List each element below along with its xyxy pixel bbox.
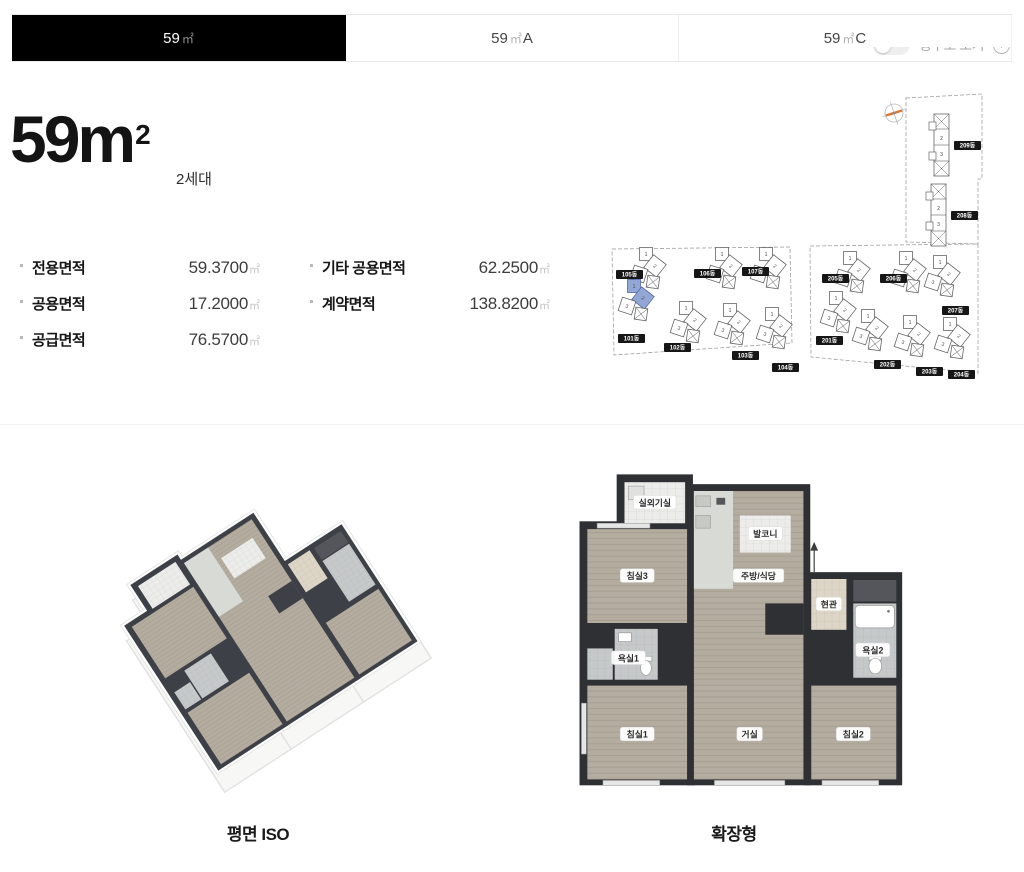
- svg-text:101동: 101동: [624, 335, 640, 343]
- compass-icon: [879, 98, 909, 128]
- building-101동: 123101동: [618, 280, 654, 344]
- svg-text:106동: 106동: [700, 270, 716, 278]
- room-label-outdoor_unit: 실외기실: [634, 495, 676, 509]
- toggle-knob: [875, 47, 891, 53]
- svg-text:1: 1: [867, 314, 870, 320]
- svg-text:1: 1: [645, 252, 648, 258]
- svg-text:욕실1: 욕실1: [618, 652, 639, 663]
- svg-text:1: 1: [765, 252, 768, 258]
- title-superscript: 2: [135, 119, 150, 150]
- building-label: 203동: [916, 367, 943, 376]
- svg-text:1: 1: [949, 322, 952, 328]
- svg-text:1: 1: [685, 306, 688, 312]
- tab-variant: C: [855, 30, 866, 47]
- bullet-icon: [310, 300, 313, 303]
- building-label: 103동: [732, 351, 759, 360]
- svg-text:1: 1: [939, 260, 942, 266]
- svg-text:발코니: 발코니: [753, 528, 777, 539]
- svg-text:203동: 203동: [922, 368, 938, 376]
- svg-text:1: 1: [849, 256, 852, 262]
- svg-text:103동: 103동: [738, 352, 754, 360]
- svg-text:주방/식당: 주방/식당: [741, 570, 776, 581]
- building-label: 102동: [664, 343, 691, 352]
- tab-unit: ㎡: [510, 30, 522, 47]
- building-label: 201동: [816, 336, 843, 345]
- svg-text:102동: 102동: [670, 344, 686, 352]
- info-icon[interactable]: i: [993, 47, 1010, 54]
- svg-text:204동: 204동: [954, 371, 970, 379]
- tab-unit: ㎡: [842, 30, 854, 47]
- building-label: 106동: [694, 269, 721, 278]
- room-label-entry: 현관: [816, 597, 842, 611]
- building-207동: 123207동: [924, 256, 969, 316]
- tab-label: 59: [491, 30, 508, 47]
- svg-text:205동: 205동: [828, 275, 844, 283]
- caption-plan-iso: 평면 ISO: [70, 820, 446, 845]
- svg-text:209동: 209동: [960, 142, 976, 150]
- building-label: 206동: [880, 274, 907, 283]
- room-label-bath2: 욕실2: [856, 643, 890, 657]
- room-label-kitchen: 주방/식당: [733, 569, 784, 583]
- tab-59a[interactable]: 59㎡A: [346, 15, 679, 61]
- area-table-left: 전용면적 59.3700 ㎡ 공용면적 17.2000 ㎡ 공급면적 76.57…: [20, 257, 260, 365]
- svg-text:1: 1: [633, 284, 636, 290]
- svg-text:욕실2: 욕실2: [862, 645, 883, 656]
- svg-text:1: 1: [721, 252, 724, 258]
- room-label-bath1: 욕실1: [611, 651, 645, 665]
- floor-plan-extended-image: 실외기실침실3발코니주방/식당현관욕실2욕실1침실1거실침실2: [558, 452, 910, 794]
- building-209동: 23209동: [929, 114, 981, 176]
- svg-text:2: 2: [937, 206, 940, 212]
- building-208동: 23208동: [926, 184, 978, 246]
- tab-59[interactable]: 59㎡: [12, 15, 346, 61]
- pyeong-toggle-label: 평수로 보기: [919, 47, 984, 55]
- area-row-common: 공용면적 17.2000 ㎡: [20, 293, 260, 310]
- building-106동: 123106동: [694, 248, 742, 289]
- svg-text:침실3: 침실3: [627, 570, 648, 581]
- building-label: 204동: [948, 370, 975, 379]
- building-label: 104동: [772, 363, 799, 372]
- site-plan-figure: 123105동123106동123107동123101동123102동12310…: [594, 86, 1024, 386]
- building-label: 105동: [616, 270, 643, 279]
- area-row-other-common: 기타 공용면적 62.2500 ㎡: [310, 257, 550, 274]
- area-table-right: 기타 공용면적 62.2500 ㎡ 계약면적 138.8200 ㎡: [310, 257, 550, 329]
- tab-unit: ㎡: [182, 30, 194, 47]
- building-202동: 123202동: [852, 310, 901, 370]
- building-206동: 123206동: [880, 252, 926, 293]
- building-label: 209동: [954, 141, 981, 150]
- room-label-balcony: 발코니: [748, 527, 782, 541]
- room-label-living: 거실: [737, 727, 763, 741]
- building-201동: 123201동: [816, 292, 856, 346]
- floor-plan-iso-image: [68, 438, 448, 818]
- svg-text:침실2: 침실2: [843, 729, 864, 740]
- building-label: 208동: [951, 211, 978, 220]
- room-label-bedroom2: 침실2: [836, 727, 870, 741]
- building-104동: 123104동: [756, 308, 799, 373]
- svg-text:거실: 거실: [742, 729, 758, 740]
- svg-text:206동: 206동: [886, 275, 902, 283]
- svg-text:3: 3: [937, 222, 940, 228]
- svg-text:105동: 105동: [622, 271, 638, 279]
- building-102동: 123102동: [664, 302, 706, 353]
- bullet-icon: [20, 264, 23, 267]
- area-row-exclusive: 전용면적 59.3700 ㎡: [20, 257, 260, 274]
- bullet-icon: [20, 300, 23, 303]
- unit-type-tabbar: 59㎡ 59㎡A 59㎡C: [12, 14, 1012, 62]
- building-103동: 123103동: [714, 304, 759, 361]
- pyeong-toggle-row: 평수로 보기 i: [873, 47, 1010, 64]
- svg-text:1: 1: [729, 308, 732, 314]
- svg-text:침실1: 침실1: [627, 729, 648, 740]
- svg-text:1: 1: [771, 312, 774, 318]
- svg-text:208동: 208동: [957, 212, 973, 220]
- svg-text:107동: 107동: [748, 268, 764, 276]
- building-label: 202동: [874, 360, 901, 369]
- bullet-icon: [20, 336, 23, 339]
- caption-plan-extended: 확장형: [558, 820, 910, 845]
- svg-text:104동: 104동: [778, 364, 794, 372]
- svg-text:실외기실: 실외기실: [639, 497, 671, 508]
- svg-text:3: 3: [940, 152, 943, 158]
- tab-label: 59: [163, 30, 180, 47]
- building-label: 107동: [742, 267, 769, 276]
- pyeong-toggle-switch[interactable]: [873, 47, 910, 55]
- svg-text:202동: 202동: [880, 361, 896, 369]
- room-label-bedroom1: 침실1: [620, 727, 654, 741]
- households-count: 2세대: [176, 168, 212, 189]
- svg-text:현관: 현관: [821, 599, 837, 610]
- section-divider: [0, 424, 1024, 425]
- building-label: 101동: [618, 334, 645, 343]
- room-label-bedroom3: 침실3: [620, 569, 654, 583]
- tab-label: 59: [824, 30, 841, 47]
- page-title: 59m2: [10, 106, 150, 172]
- building-label: 205동: [822, 274, 849, 283]
- building-105동: 123105동: [616, 248, 666, 289]
- svg-text:1: 1: [909, 320, 912, 326]
- building-107동: 123107동: [742, 248, 786, 289]
- svg-text:2: 2: [940, 136, 943, 142]
- building-205동: 123205동: [822, 252, 870, 293]
- building-label: 207동: [942, 306, 969, 315]
- svg-text:201동: 201동: [822, 337, 838, 345]
- bullet-icon: [310, 264, 313, 267]
- area-row-contract: 계약면적 138.8200 ㎡: [310, 293, 550, 310]
- svg-text:1: 1: [835, 296, 838, 302]
- svg-text:207동: 207동: [948, 307, 964, 315]
- tab-variant: A: [523, 30, 533, 47]
- area-row-supply: 공급면적 76.5700 ㎡: [20, 329, 260, 346]
- svg-text:1: 1: [905, 256, 908, 262]
